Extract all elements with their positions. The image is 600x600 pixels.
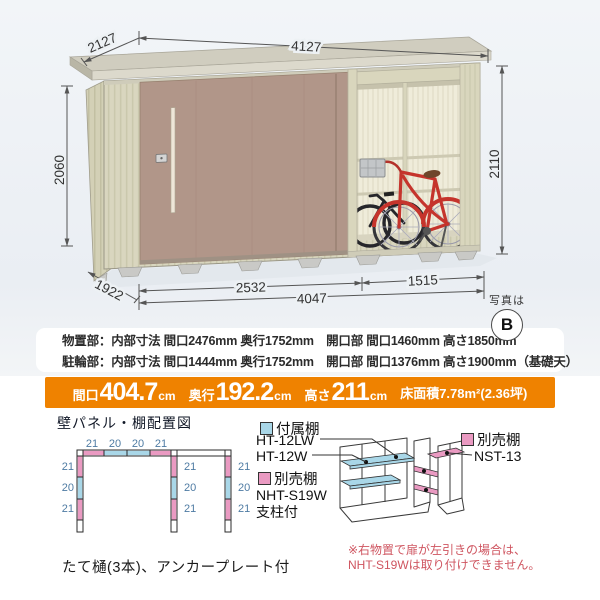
photo-badge-letter: B — [491, 309, 523, 341]
warning-note: ※右物置で扉が左引きの場合は、 NHT-S19Wは取り付けできません。 — [348, 543, 540, 573]
dim-label-top-width: 4127 — [291, 38, 322, 55]
legend-model-ht12lw: HT-12LW — [256, 432, 314, 448]
plan-right-label: 21 — [238, 461, 250, 473]
shed-body — [70, 37, 491, 281]
legend-model-ht12w: HT-12W — [256, 448, 307, 464]
legend-optional-shelf-left: 別売棚 — [258, 468, 318, 489]
plan-middle-label: 21 — [184, 461, 196, 473]
dim-label-top-depth: 2127 — [85, 30, 119, 56]
included-parts-text: たて樋(3本)、アンカープレート付 — [62, 556, 290, 577]
banner-floor-area: 床面積7.78m²(2.36坪) — [400, 383, 527, 402]
wall-panel-plan: 21 20 20 21 21 20 21 21 20 21 21 20 21 — [62, 438, 251, 532]
dim-label-front-right: 1515 — [407, 272, 438, 288]
banner-width: 間口 404.7 cm — [73, 378, 176, 407]
plan-left-label: 21 — [62, 461, 74, 473]
layout-section: 21 20 20 21 21 20 21 21 20 21 21 20 21 — [0, 410, 600, 600]
bay-left-post-front — [348, 69, 357, 257]
plan-left-label: 21 — [62, 503, 74, 515]
plan-top-label: 21 — [86, 438, 98, 450]
legend-with-posts: 支柱付 — [256, 502, 298, 522]
optional-shelf-swatch — [258, 472, 271, 485]
plan-top-label: 21 — [155, 438, 167, 450]
plan-title: 壁パネル・棚配置図 — [57, 413, 192, 433]
plan-top-label: 20 — [132, 438, 144, 450]
spec-line-bicycle: 駐輪部：内部寸法 間口1444mm 奥行1752mm 開口部 間口1376mm … — [62, 351, 564, 370]
dim-label-front-left: 2532 — [236, 279, 267, 295]
legend-model-nst13: NST-13 — [474, 448, 521, 464]
door-handle — [171, 108, 175, 213]
corner-post-front — [460, 63, 480, 252]
photo-badge: 写真は B — [484, 292, 530, 341]
legend-optional-shelf-right: 別売棚 — [461, 429, 521, 450]
plan-middle-label: 20 — [184, 482, 196, 494]
product-photo-section: 2127 4127 2060 2110 1922 2532 1515 4047 … — [0, 0, 600, 376]
legend-model-nht-s19w: NHT-S19W — [256, 487, 327, 503]
dim-label-front-total: 4047 — [297, 290, 328, 306]
plan-top-label: 20 — [109, 438, 121, 450]
shelf-isometric-drawing — [312, 438, 472, 522]
plan-left-label: 20 — [62, 482, 74, 494]
plan-right-label: 21 — [238, 503, 250, 515]
size-banner: 間口 404.7 cm 奥行 192.2 cm 高さ 211 cm 床面積7.7… — [45, 377, 555, 408]
plan-middle-label: 21 — [184, 503, 196, 515]
dim-label-right-height: 2110 — [487, 149, 502, 178]
optional-shelf-swatch — [461, 433, 474, 446]
banner-depth: 奥行 192.2 cm — [189, 378, 292, 407]
sliding-door — [140, 72, 348, 264]
photo-badge-label: 写真は — [484, 292, 530, 308]
plan-right-label: 20 — [238, 482, 250, 494]
dim-label-left-height: 2060 — [52, 155, 67, 185]
banner-height: 高さ 211 cm — [304, 378, 387, 407]
